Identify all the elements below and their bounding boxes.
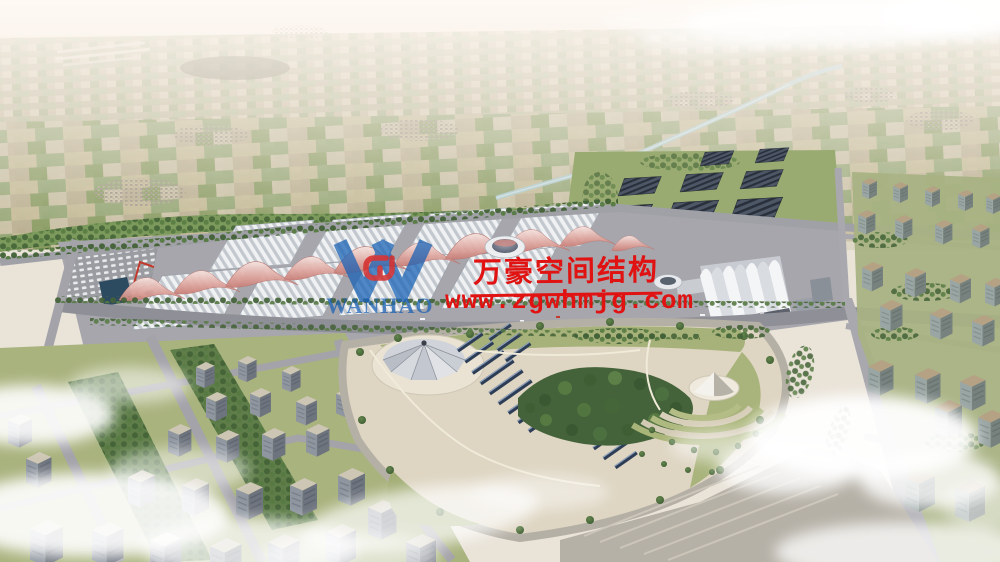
central-dome-hall	[485, 236, 525, 258]
scene-canvas	[0, 0, 1000, 562]
aerial-rendering: WANHAO 万豪空间结构 www.zgwhmjg.com	[0, 0, 1000, 562]
